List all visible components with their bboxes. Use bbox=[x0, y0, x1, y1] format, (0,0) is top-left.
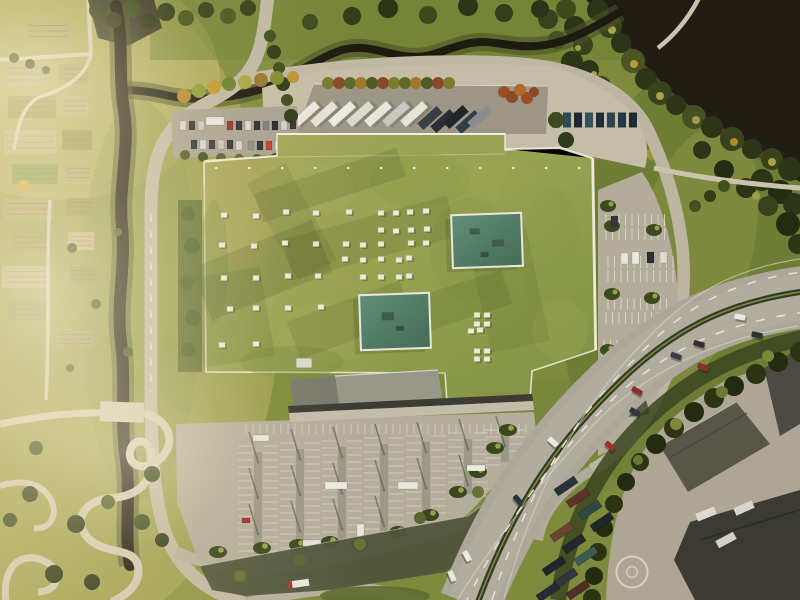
warm-haze bbox=[0, 0, 800, 600]
sun-glare bbox=[0, 0, 800, 600]
aerial-photograph bbox=[0, 0, 800, 600]
aerial-photo-canvas bbox=[0, 0, 800, 600]
